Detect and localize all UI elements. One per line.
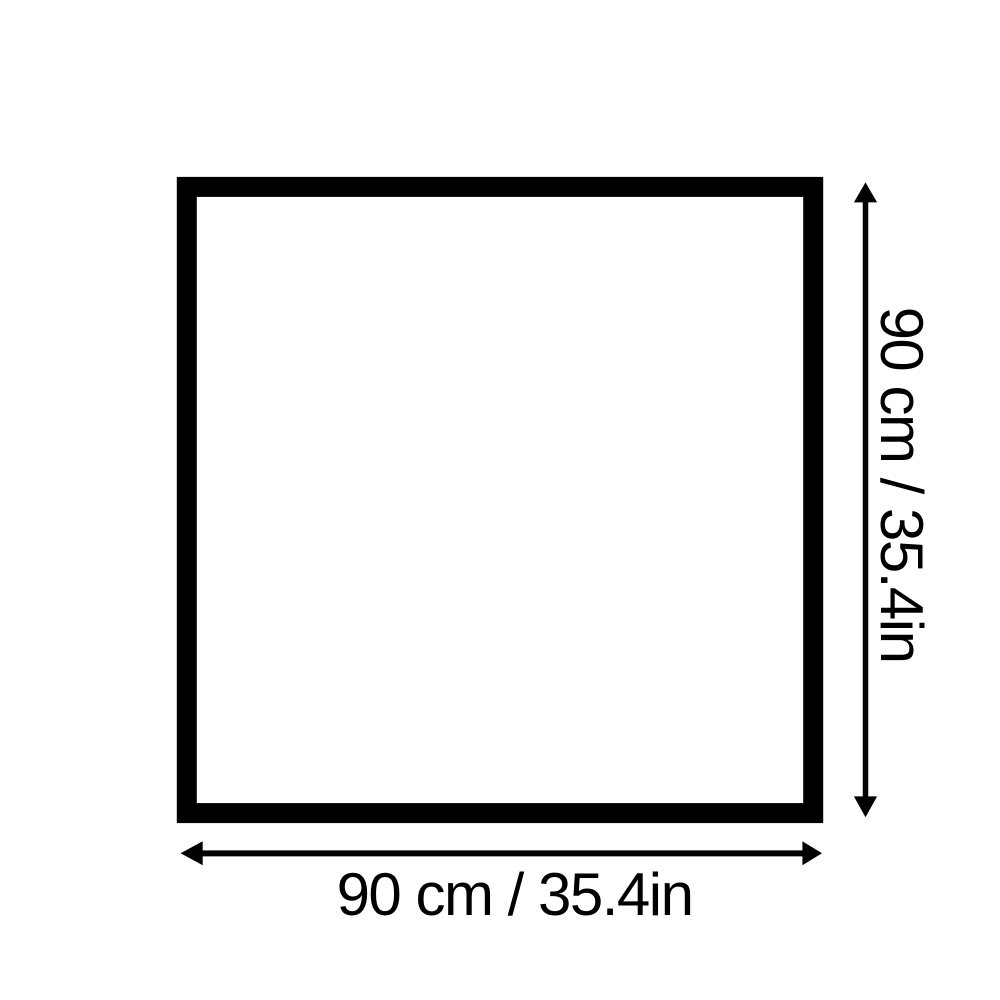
- svg-text:90 cm / 35.4in: 90 cm / 35.4in: [337, 861, 693, 928]
- svg-text:90 cm / 35.4in: 90 cm / 35.4in: [868, 307, 935, 663]
